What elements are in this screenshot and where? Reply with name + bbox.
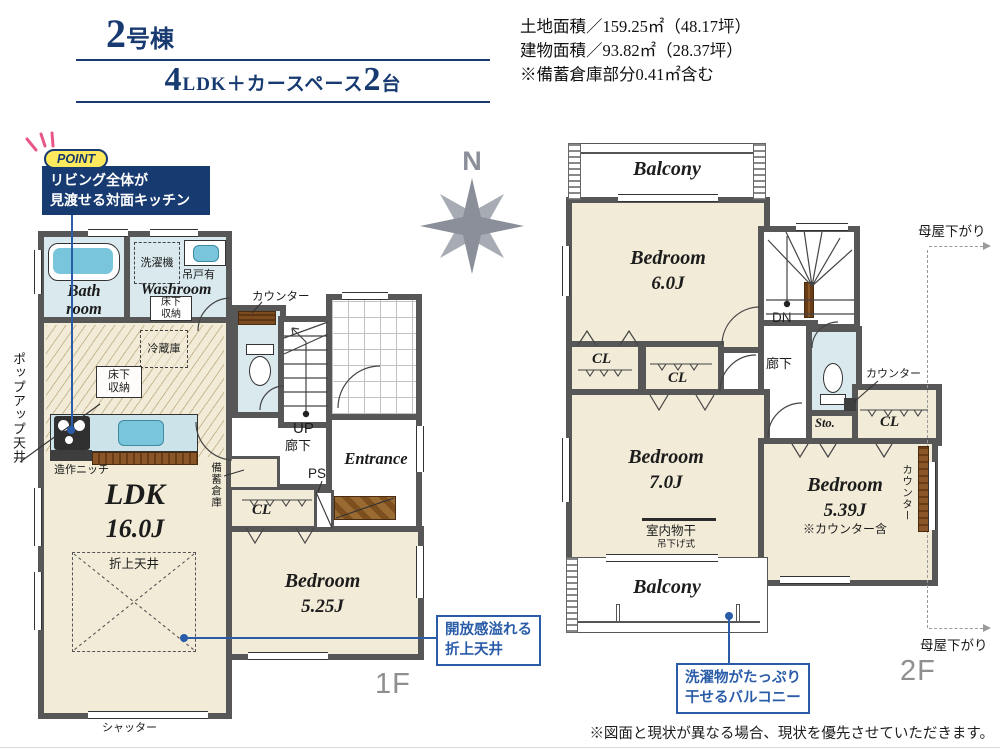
bedroom539-size: 5.39J bbox=[790, 500, 900, 521]
window-ldk-left-1 bbox=[34, 488, 42, 546]
point-line2: 見渡せる対面キッチン bbox=[50, 191, 202, 211]
balcony-bottom-rail bbox=[574, 621, 760, 623]
carspace-unit: 台 bbox=[381, 74, 401, 95]
bedroom-1f-label: Bedroom bbox=[250, 570, 395, 592]
hanging-cupboard-label: 吊戸有 bbox=[182, 269, 215, 282]
window-bath-top bbox=[88, 229, 128, 237]
floor2-label: 2F bbox=[900, 655, 936, 688]
moya-sagari-bottom-label: 母屋下がり bbox=[920, 638, 988, 654]
bedroom6-label: Bedroom bbox=[600, 247, 736, 269]
balcony-bottom-post-left bbox=[566, 557, 578, 633]
coffered-ceiling-label: 折上天井 bbox=[109, 557, 159, 571]
point-connector-line bbox=[71, 213, 73, 428]
building-area: 建物面積／93.82㎡（28.37坪） bbox=[520, 39, 751, 63]
bathroom-label-1: Bath bbox=[44, 282, 124, 300]
entrance-label: Entrance bbox=[336, 450, 416, 468]
window-bedroom7-bottom bbox=[606, 554, 718, 562]
ceiling-callout: 開放感溢れる 折上天井 bbox=[436, 615, 541, 666]
window-stairs-top bbox=[796, 223, 848, 231]
moya-arrowheads bbox=[983, 242, 991, 632]
balcony-bottom-stub-2 bbox=[736, 604, 740, 622]
coffered-ceiling-area: 折上天井 bbox=[72, 552, 196, 652]
laundry-callout-line2: 干せるバルコニー bbox=[685, 688, 801, 708]
pantry-label: 備蓄倉庫 bbox=[210, 462, 222, 522]
underfloor-storage-kitchen-text: 床下収納 bbox=[106, 369, 132, 394]
shutter-label: シャッター bbox=[102, 722, 157, 735]
moya-dash-top bbox=[929, 246, 983, 247]
storage-label-2f: Sto. bbox=[815, 416, 835, 430]
window-bedroom1f-bottom bbox=[248, 652, 328, 660]
title-rule-bottom bbox=[76, 101, 490, 103]
storage-note: ※備蓄倉庫部分0.41㎡含む bbox=[520, 63, 751, 87]
bedroom7-label: Bedroom bbox=[596, 446, 736, 468]
window-porch-top bbox=[342, 292, 388, 300]
point-connector-dot bbox=[67, 426, 75, 434]
window-bedroom539-bottom bbox=[780, 576, 850, 584]
toilet-counter-1f bbox=[238, 311, 276, 325]
bedroom539-label: Bedroom bbox=[790, 474, 900, 496]
hanging-type-label: 吊下げ式 bbox=[657, 540, 695, 551]
building-suffix: 号棟 bbox=[126, 27, 174, 53]
layout-type: LDK＋カースペース bbox=[183, 74, 364, 95]
balcony-top-label: Balcony bbox=[600, 158, 734, 180]
moya-dash-bottom bbox=[929, 628, 983, 629]
hallway-label-2f: 廊下 bbox=[766, 357, 792, 372]
laundry-callout-line bbox=[728, 616, 730, 664]
point-badge: POINT bbox=[44, 149, 108, 169]
balcony-top-post-left bbox=[568, 143, 581, 200]
indoor-drying-label: 室内物干 bbox=[646, 524, 696, 538]
drying-rod-line bbox=[642, 518, 716, 521]
bathroom-label-2: room bbox=[44, 300, 124, 318]
genkan-step bbox=[334, 496, 396, 520]
cl-label-2f-b: CL bbox=[668, 370, 687, 387]
stove-burner-2 bbox=[74, 420, 85, 431]
window-bedroom6-top bbox=[618, 194, 718, 202]
counter-vertical-label: カウンター bbox=[901, 464, 913, 524]
window-ldk-bottom-shutter bbox=[88, 711, 208, 719]
toilet-counter-2f bbox=[844, 398, 856, 411]
ceiling-callout-line bbox=[184, 637, 436, 639]
disclaimer: ※図面と現状が異なる場合、現状を優先させていただきます。 bbox=[589, 726, 994, 743]
floorplan-page: 2号棟 4LDK＋カースペース2台 土地面積／159.25㎡（48.17坪） 建… bbox=[0, 0, 1000, 750]
stove-burner-3 bbox=[65, 436, 73, 444]
ps-shaft bbox=[314, 490, 334, 530]
kitchen-sink bbox=[118, 420, 164, 446]
cl-label-2f-a: CL bbox=[592, 351, 611, 368]
point-text: リビング全体が 見渡せる対面キッチン bbox=[42, 166, 210, 215]
compass-north-label: N bbox=[455, 146, 489, 177]
cl-label-1f: CL bbox=[252, 502, 271, 519]
underfloor-storage-washroom-text: 床下収納 bbox=[159, 297, 183, 320]
area-info: 土地面積／159.25㎡（48.17坪） 建物面積／93.82㎡（28.37坪）… bbox=[520, 15, 751, 87]
underfloor-storage-kitchen: 床下収納 bbox=[96, 366, 142, 398]
refrigerator: 冷蔵庫 bbox=[140, 330, 188, 368]
toilet-bowl-1f bbox=[249, 356, 271, 386]
ceiling-callout-line1: 開放感溢れる bbox=[445, 620, 532, 640]
ceiling-callout-line2: 折上天井 bbox=[445, 640, 532, 660]
cl-label-2f-c: CL bbox=[880, 414, 899, 431]
toilet-bowl-2f bbox=[823, 363, 843, 393]
bathtub bbox=[48, 243, 120, 281]
land-area: 土地面積／159.25㎡（48.17坪） bbox=[520, 15, 751, 39]
moya-sagari-top-label: 母屋下がり bbox=[918, 224, 986, 240]
building-number: 2 bbox=[106, 11, 126, 56]
window-bedroom7-left bbox=[562, 438, 570, 502]
up-label: UP bbox=[293, 420, 314, 437]
door-arc-hall-2f bbox=[720, 355, 756, 391]
entrance-door bbox=[416, 426, 424, 472]
balcony-top-post-right bbox=[753, 143, 766, 200]
toilet-tank-1f bbox=[246, 344, 274, 355]
ps-label: PS bbox=[308, 466, 326, 482]
counter-label-2f: カウンター bbox=[866, 368, 921, 381]
window-washroom-top bbox=[150, 229, 198, 237]
carspace-count: 2 bbox=[363, 61, 381, 98]
point-line1: リビング全体が bbox=[50, 171, 202, 191]
laundry-callout-line1: 洗濯物がたっぷり bbox=[685, 668, 801, 688]
window-bedroom1f-right bbox=[416, 546, 424, 598]
bathtub-water bbox=[53, 248, 113, 274]
popup-ceiling-label: ポップアップ天井 bbox=[10, 352, 25, 482]
ldk-label: LDK bbox=[75, 478, 195, 512]
washbasin bbox=[184, 240, 226, 266]
moya-dash-vertical bbox=[927, 250, 928, 628]
window-ldk-left-2 bbox=[34, 572, 42, 630]
window-bedroom6-left bbox=[562, 246, 570, 296]
pantry-shelf bbox=[228, 456, 280, 490]
layout-subtitle: 4LDK＋カースペース2台 bbox=[76, 61, 490, 99]
niche-label: 造作ニッチ bbox=[54, 464, 109, 477]
toilet-tank-2f bbox=[820, 394, 846, 405]
bottom-border bbox=[0, 747, 1000, 748]
point-sparkles-icon bbox=[27, 133, 53, 150]
washing-machine: 洗濯機 bbox=[134, 242, 180, 284]
counter-label-1f: カウンター bbox=[252, 291, 310, 304]
counter-included-label: ※カウンター含 bbox=[780, 523, 910, 537]
balcony-top-rail bbox=[576, 152, 758, 154]
bedroom-1f-size: 5.25J bbox=[250, 596, 395, 617]
washbasin-bowl bbox=[193, 245, 219, 262]
bathroom-label: Bath room bbox=[44, 282, 124, 319]
dn-label: DN bbox=[772, 310, 792, 326]
room-entrance-porch bbox=[326, 294, 422, 420]
window-bedroom539-right bbox=[928, 462, 936, 530]
balcony-bottom-label: Balcony bbox=[600, 576, 734, 598]
hallway-label-1f: 廊下 bbox=[285, 439, 311, 454]
ldk-size-label: 16.0J bbox=[75, 514, 195, 543]
stairs-handrail-2f bbox=[804, 282, 814, 318]
laundry-callout: 洗濯物がたっぷり 干せるバルコニー bbox=[676, 663, 810, 714]
bedroom6-size: 6.0J bbox=[600, 273, 736, 294]
balcony-bottom-stub-1 bbox=[616, 604, 620, 622]
underfloor-storage-washroom: 床下収納 bbox=[150, 296, 192, 321]
compass-rose-icon bbox=[420, 178, 524, 274]
layout-count: 4 bbox=[165, 61, 183, 98]
kitchen-back-panel bbox=[50, 450, 92, 461]
room-bedroom-1f bbox=[226, 526, 424, 660]
window-bath-left bbox=[34, 250, 42, 294]
page-title: 2号棟 bbox=[106, 10, 174, 57]
bedroom7-size: 7.0J bbox=[596, 472, 736, 493]
floor1-label: 1F bbox=[375, 668, 411, 701]
